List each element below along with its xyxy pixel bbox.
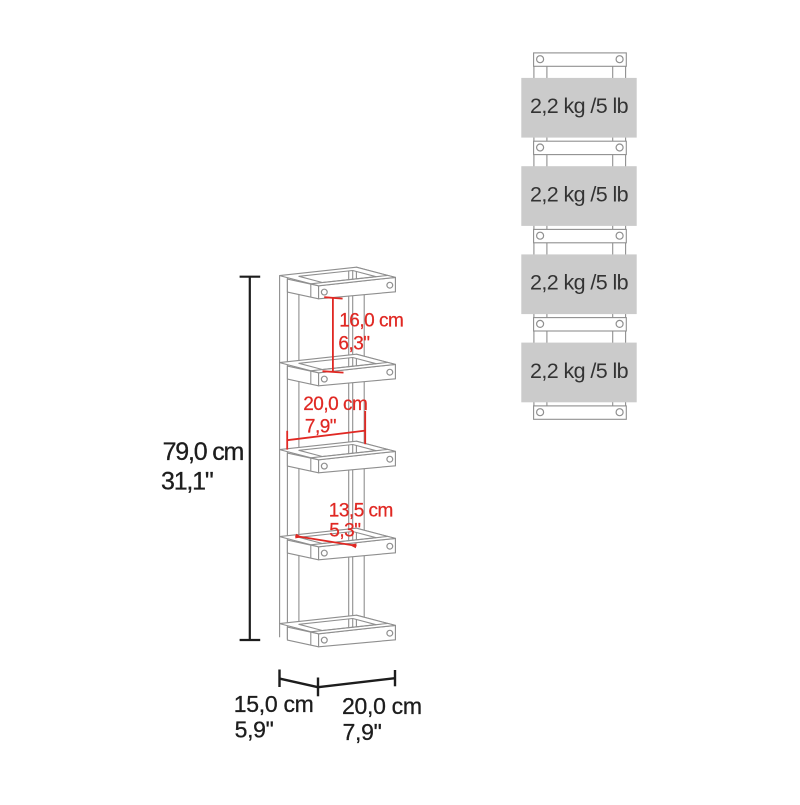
svg-text:2,2 kg /5 lb: 2,2 kg /5 lb: [530, 182, 629, 206]
svg-text:16,0 cm: 16,0 cm: [339, 311, 403, 332]
svg-text:7,9": 7,9": [305, 417, 336, 438]
svg-text:20,0 cm: 20,0 cm: [303, 394, 367, 415]
svg-text:6,3": 6,3": [338, 333, 369, 354]
svg-text:2,2 kg /5 lb: 2,2 kg /5 lb: [530, 359, 629, 383]
svg-text:31,1": 31,1": [161, 467, 213, 495]
svg-text:20,0 cm: 20,0 cm: [342, 693, 422, 719]
svg-text:5,9": 5,9": [235, 717, 274, 743]
svg-text:7,9": 7,9": [343, 719, 382, 745]
svg-text:15,0 cm: 15,0 cm: [234, 691, 314, 717]
svg-text:2,2 kg /5 lb: 2,2 kg /5 lb: [530, 94, 629, 118]
svg-text:2,2 kg /5 lb: 2,2 kg /5 lb: [530, 271, 629, 295]
svg-text:13,5 cm: 13,5 cm: [329, 500, 393, 521]
svg-text:79,0 cm: 79,0 cm: [163, 438, 244, 466]
svg-text:5,3": 5,3": [329, 521, 360, 542]
